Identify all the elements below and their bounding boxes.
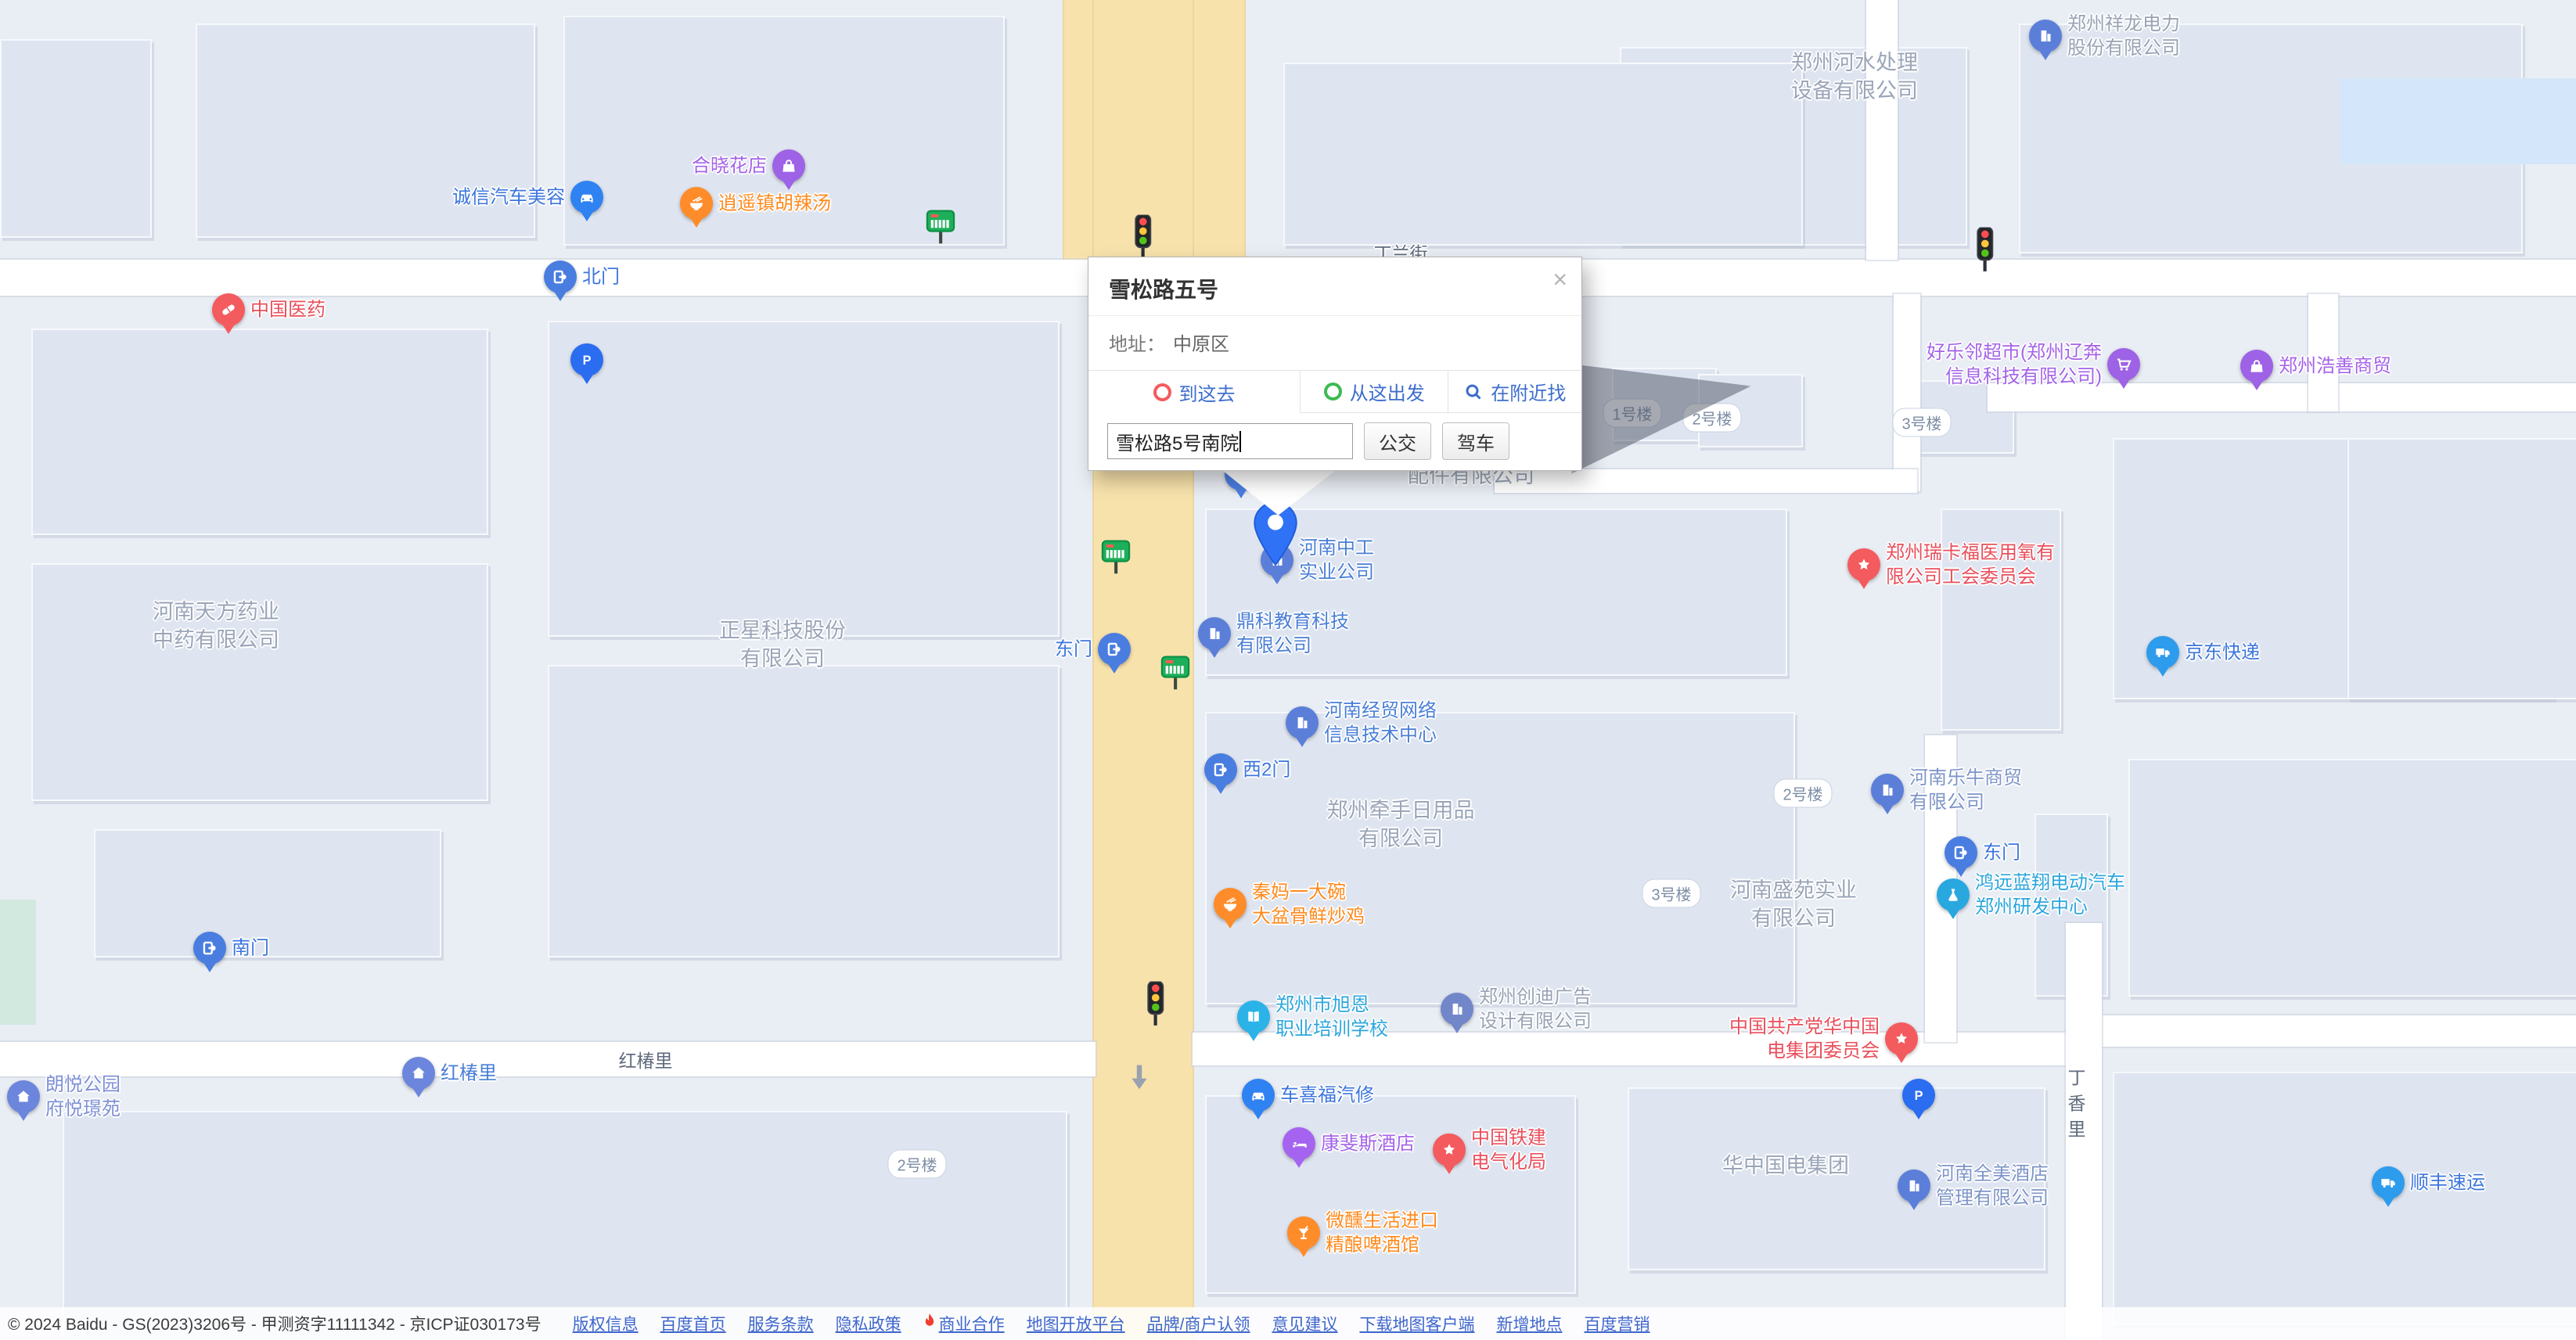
bus-stop-icon bbox=[1160, 656, 1191, 700]
p-icon: P bbox=[1902, 1079, 1935, 1112]
poi-label: 朗悦公园府悦璟苑 bbox=[45, 1072, 121, 1121]
area-label: 河南天方药业中药有限公司 bbox=[153, 598, 279, 654]
tab-label: 到这去 bbox=[1179, 379, 1236, 406]
red-circle-icon bbox=[1153, 383, 1171, 401]
footer-link-地图开放平台[interactable]: 地图开放平台 bbox=[1027, 1312, 1125, 1335]
building-block bbox=[548, 665, 1060, 957]
address-value: 中原区 bbox=[1173, 334, 1229, 355]
footer-link-意见建议[interactable]: 意见建议 bbox=[1272, 1312, 1337, 1335]
building-block bbox=[2128, 759, 2576, 997]
bed-icon bbox=[1283, 1127, 1315, 1160]
info-window-tabs: 到这去 从这出发 在附近找 bbox=[1088, 370, 1581, 413]
poi-label: 郑州市旭恩职业培训学校 bbox=[1275, 993, 1388, 1041]
svg-text:P: P bbox=[583, 354, 592, 368]
poi-label: 河南中工实业公司 bbox=[1299, 536, 1374, 584]
poi-label: 河南经贸网络信息技术中心 bbox=[1324, 699, 1437, 747]
destination-input-value: 雪松路5号南院 bbox=[1116, 428, 1239, 455]
building-icon bbox=[1198, 617, 1231, 650]
poi-label: 秦妈一大碗大盆骨鲜炒鸡 bbox=[1252, 880, 1365, 929]
building-icon bbox=[1441, 993, 1473, 1026]
poi-label: 东门 bbox=[1983, 841, 2020, 865]
footer-link-版权信息[interactable]: 版权信息 bbox=[573, 1312, 639, 1335]
bag-icon bbox=[772, 149, 805, 182]
poi-label: 红椿里 bbox=[441, 1062, 497, 1086]
footer-link-服务条款[interactable]: 服务条款 bbox=[748, 1312, 814, 1335]
poi-label: 鼎科教育科技有限公司 bbox=[1236, 609, 1349, 658]
building-block bbox=[1283, 63, 1803, 246]
info-window: 雪松路五号 × 地址：中原区 到这去 从这出发 在附近找 bbox=[1088, 257, 1582, 471]
road-label: 丁香里 bbox=[2062, 1069, 2089, 1146]
footer-bar: © 2024 Baidu - GS(2023)3206号 - 甲测资字11111… bbox=[0, 1307, 2576, 1340]
bus-button[interactable]: 公交 bbox=[1364, 422, 1431, 460]
building-number-badge: 3号楼 bbox=[1892, 408, 1951, 437]
cocktail-icon bbox=[1287, 1216, 1320, 1249]
gate-icon bbox=[544, 260, 577, 293]
address-label: 地址： bbox=[1109, 334, 1165, 355]
road bbox=[2102, 1015, 2576, 1047]
tab-directions-from[interactable]: 从这出发 bbox=[1300, 371, 1448, 413]
truck-icon bbox=[2372, 1166, 2405, 1199]
building-number-badge: 2号楼 bbox=[887, 1150, 946, 1179]
poi-label: 郑州浩善商贸 bbox=[2279, 354, 2391, 379]
poi-label: 中国铁建电气化局 bbox=[1471, 1126, 1546, 1174]
green-circle-icon bbox=[1324, 383, 1342, 401]
poi-label: 京东快递 bbox=[2185, 641, 2260, 665]
poi-label: 河南乐牛商贸有限公司 bbox=[1909, 766, 2022, 814]
area-label: 河南盛苑实业有限公司 bbox=[1730, 876, 1857, 932]
cart-icon bbox=[2107, 348, 2140, 381]
pill-icon bbox=[212, 293, 245, 326]
poi-label: 郑州祥龙电力股份有限公司 bbox=[2067, 12, 2180, 60]
building-icon bbox=[1286, 706, 1319, 739]
poi-label: 好乐邻超市(郑州辽奔信息科技有限公司) bbox=[1927, 340, 2102, 389]
building-number-badge: 2号楼 bbox=[1773, 779, 1832, 808]
star-icon bbox=[1885, 1022, 1918, 1055]
truck-icon bbox=[2146, 636, 2179, 669]
poi-label: 微醺生活进口精酿啤酒馆 bbox=[1326, 1209, 1438, 1257]
text-caret bbox=[1239, 431, 1241, 452]
p-icon: P bbox=[570, 343, 603, 376]
footer-link-品牌/商户认领[interactable]: 品牌/商户认领 bbox=[1147, 1312, 1250, 1335]
house-icon bbox=[402, 1057, 435, 1090]
area-label: 郑州河水处理设备有限公司 bbox=[1791, 48, 1918, 105]
drive-button[interactable]: 驾车 bbox=[1442, 422, 1509, 460]
area-label: 华中国电集团 bbox=[1722, 1151, 1849, 1180]
park-area bbox=[0, 900, 36, 1025]
book-icon bbox=[1237, 1001, 1270, 1033]
search-icon bbox=[1464, 383, 1483, 401]
poi-label: 康斐斯酒店 bbox=[1321, 1132, 1415, 1156]
poi-label: 逍遥镇胡辣汤 bbox=[718, 192, 831, 216]
building-number-badge: 3号楼 bbox=[1642, 879, 1700, 908]
road bbox=[1894, 294, 1920, 491]
destination-input[interactable]: 雪松路5号南院 bbox=[1107, 423, 1353, 459]
building-block bbox=[548, 321, 1060, 637]
building-block bbox=[2113, 1072, 2576, 1325]
one-way-arrow-icon bbox=[1127, 1062, 1152, 1098]
road bbox=[2308, 294, 2338, 411]
footer-link-商业合作[interactable]: 商业合作 bbox=[923, 1312, 1005, 1335]
area-label: 正星科技股份有限公司 bbox=[719, 616, 846, 673]
bowl-icon bbox=[680, 187, 713, 220]
poi-label: 鸿远蓝翔电动汽车郑州研发中心 bbox=[1975, 871, 2125, 919]
building-icon bbox=[2029, 20, 2062, 52]
bus-stop-icon bbox=[925, 210, 956, 254]
traffic-light-icon bbox=[1146, 982, 1170, 1031]
building-icon bbox=[1871, 774, 1904, 807]
bag-icon bbox=[2240, 350, 2273, 383]
building-block bbox=[63, 1111, 1067, 1340]
address-row: 地址：中原区 bbox=[1088, 315, 1581, 370]
poi-label: 合晓花店 bbox=[692, 154, 767, 178]
footer-link-百度首页[interactable]: 百度首页 bbox=[660, 1312, 726, 1335]
poi-label: 河南全美酒店管理有限公司 bbox=[1936, 1162, 2049, 1210]
poi-label: 郑州瑞卡福医用氧有限公司工会委员会 bbox=[1886, 541, 2055, 589]
poi-label: 顺丰速运 bbox=[2410, 1171, 2485, 1195]
poi-label: 北门 bbox=[582, 265, 620, 289]
road bbox=[1866, 0, 1898, 260]
building-block bbox=[0, 39, 152, 238]
flame-icon bbox=[923, 1313, 936, 1335]
building-block bbox=[31, 329, 488, 535]
footer-link-隐私政策[interactable]: 隐私政策 bbox=[836, 1312, 901, 1335]
gate-icon bbox=[193, 932, 226, 965]
tab-label: 在附近找 bbox=[1491, 378, 1566, 405]
poi-label: 车喜福汽修 bbox=[1280, 1083, 1374, 1108]
traffic-light-icon bbox=[1976, 228, 1999, 277]
building-block bbox=[2348, 438, 2576, 699]
building-icon bbox=[1898, 1169, 1930, 1202]
map-canvas[interactable]: 诚信汽车美容合晓花店逍遥镇胡辣汤北门中国医药P河南中工实业公司鼎科教育科技有限公… bbox=[0, 0, 2576, 1340]
poi-label: 中国医药 bbox=[250, 298, 326, 322]
copyright-text: © 2024 Baidu - GS(2023)3206号 - 甲测资字11111… bbox=[8, 1312, 541, 1335]
area-label: 郑州牵手日用品有限公司 bbox=[1327, 796, 1475, 853]
car-icon bbox=[1242, 1079, 1275, 1112]
gate-icon bbox=[1098, 633, 1131, 666]
star-icon bbox=[1433, 1133, 1466, 1166]
close-icon[interactable]: × bbox=[1552, 267, 1567, 292]
house-icon bbox=[7, 1080, 40, 1113]
poi-label: 诚信汽车美容 bbox=[452, 185, 565, 210]
road bbox=[0, 1042, 1096, 1076]
footer-link-百度营销[interactable]: 百度营销 bbox=[1584, 1312, 1650, 1335]
footer-link-下载地图客户端[interactable]: 下载地图客户端 bbox=[1359, 1312, 1474, 1335]
tab-label: 从这出发 bbox=[1350, 378, 1425, 405]
directions-search-row: 雪松路5号南院 公交 驾车 bbox=[1088, 413, 1581, 469]
bus-stop-icon bbox=[1100, 540, 1131, 584]
flask-icon bbox=[1937, 878, 1970, 911]
footer-link-新增地点[interactable]: 新增地点 bbox=[1496, 1312, 1562, 1335]
info-window-title: 雪松路五号 bbox=[1088, 257, 1581, 315]
tab-search-nearby[interactable]: 在附近找 bbox=[1448, 371, 1581, 413]
poi-label: 西2门 bbox=[1243, 758, 1290, 782]
car-icon bbox=[570, 181, 603, 214]
bowl-icon bbox=[1214, 888, 1247, 921]
tab-directions-to[interactable]: 到这去 bbox=[1088, 371, 1300, 413]
building-block bbox=[1205, 712, 1795, 1004]
poi-label: 东门 bbox=[1055, 638, 1092, 662]
poi-label: 中国共产党华中国电集团委员会 bbox=[1729, 1015, 1880, 1063]
poi-label: 南门 bbox=[232, 936, 269, 961]
water-area bbox=[2340, 78, 2576, 164]
poi-label: 郑州创迪广告设计有限公司 bbox=[1479, 985, 1592, 1033]
svg-text:P: P bbox=[1915, 1089, 1923, 1103]
road-label: 红椿里 bbox=[619, 1046, 673, 1072]
gate-icon bbox=[1945, 836, 1977, 869]
star-icon bbox=[1847, 548, 1880, 581]
road bbox=[1495, 469, 1917, 493]
gate-icon bbox=[1204, 753, 1237, 786]
